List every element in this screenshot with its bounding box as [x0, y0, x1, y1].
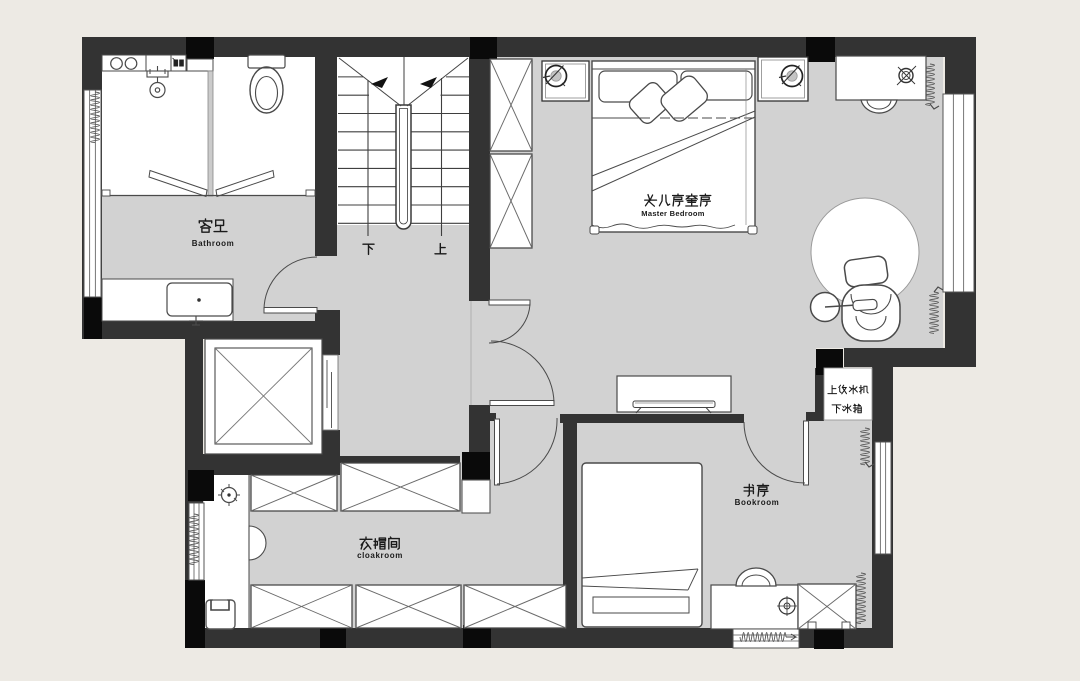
svg-text:cloakroom: cloakroom	[357, 551, 403, 560]
svg-text:Master Bedroom: Master Bedroom	[641, 209, 704, 218]
svg-text:Bookroom: Bookroom	[735, 498, 780, 507]
svg-text:Bathroom: Bathroom	[192, 239, 235, 248]
